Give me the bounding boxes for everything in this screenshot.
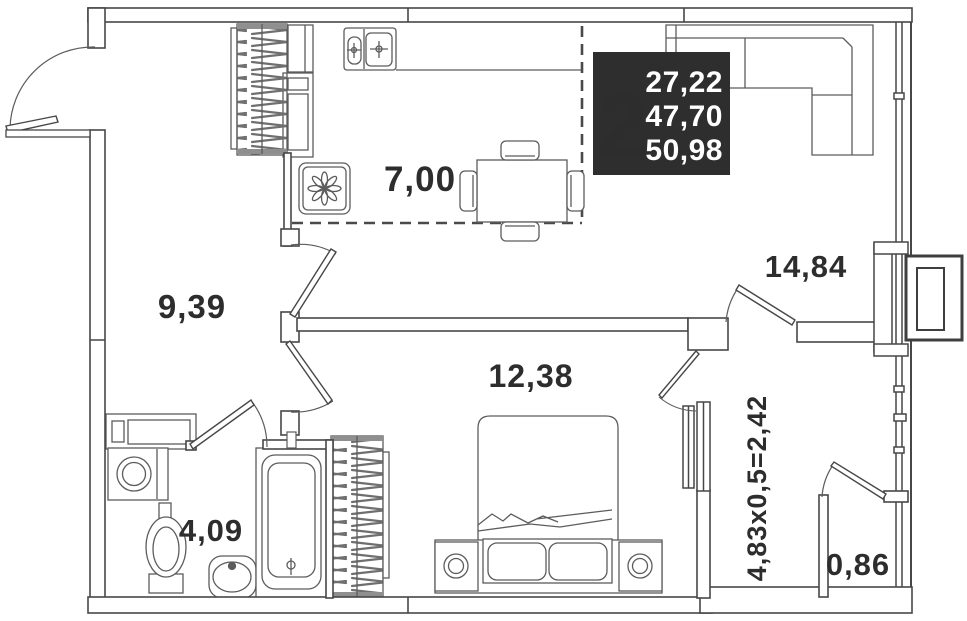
bathtub (256, 448, 327, 598)
room-label-bathroom: 4,09 (179, 513, 243, 548)
badge-area-living: 27,22 (645, 66, 723, 99)
entrance-threshold (6, 130, 90, 137)
wall-bottom (88, 597, 712, 613)
bathtub-faucet (287, 432, 296, 448)
washing-machine (108, 448, 168, 500)
pillow (488, 543, 546, 580)
stove (299, 163, 350, 214)
wall-bedroom-top (297, 318, 688, 331)
badge-rooms-count: 2 (598, 77, 648, 177)
room-label-loggia-formula: 4,83x0,5=2,42 (742, 395, 772, 581)
wall-left (90, 130, 105, 598)
wall-corner-block (688, 318, 728, 350)
wardrobe-bedroom (331, 436, 389, 597)
bedroom-loggia-window (683, 402, 710, 491)
window-mullion (894, 414, 906, 421)
floorplan-svg: 7,00 9,39 14,84 12,38 4,09 0,86 4,83x0,5… (0, 0, 967, 621)
wall-bathroom-top (263, 440, 333, 449)
room-label-hallway: 9,39 (158, 288, 226, 325)
wall-bedroom-right (697, 490, 710, 598)
pillow (549, 543, 607, 580)
floorplan-canvas: 7,00 9,39 14,84 12,38 4,09 0,86 4,83x0,5… (0, 0, 967, 621)
wall-loggia-top (797, 322, 877, 342)
dining-table (477, 160, 567, 222)
wall-bottom-loggia (700, 587, 912, 613)
wall-left-stub (88, 8, 105, 48)
room-label-kitchen: 7,00 (384, 160, 456, 199)
bathroom-sink (209, 556, 256, 598)
window-mullion (894, 447, 904, 453)
room-label-bedroom: 12,38 (488, 358, 573, 394)
tall-cabinet (288, 25, 313, 72)
window-mullion (894, 93, 904, 99)
hallway-cabinet (106, 414, 196, 449)
wall-bathroom-right (326, 440, 333, 598)
room-label-balcony: 0,86 (826, 547, 890, 582)
room-label-living-room: 14,84 (765, 249, 848, 284)
balcony-door-threshold (884, 491, 908, 502)
kitchen-sink (344, 28, 396, 70)
wall-stub-lower (281, 411, 299, 435)
wall-top (88, 8, 912, 22)
wall-stub-upper (281, 229, 299, 246)
wardrobe-hallway (231, 24, 287, 155)
ac-unit (906, 256, 962, 340)
nightstand-left (435, 542, 478, 591)
badge-area-overall: 50,98 (645, 134, 723, 167)
window-mullion (894, 386, 904, 392)
area-badge: 2 * 27,22 47,70 50,98 (593, 51, 730, 177)
badge-area-total: 47,70 (645, 100, 723, 133)
nightstand-right (619, 542, 662, 591)
